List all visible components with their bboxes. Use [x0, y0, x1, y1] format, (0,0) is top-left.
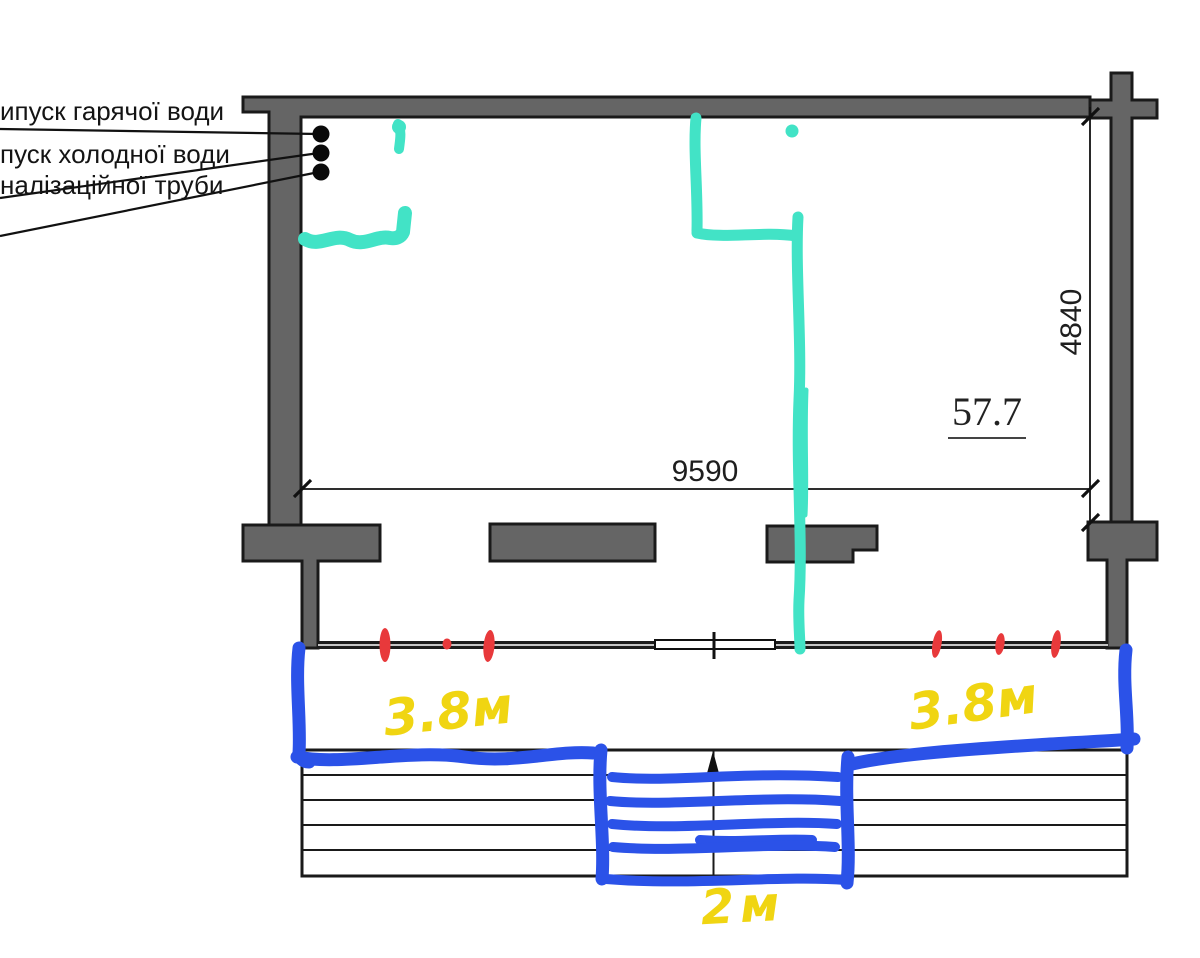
sewer-pipe-label: налізаційної труби	[0, 170, 223, 200]
red-mark-3	[482, 630, 496, 663]
cyan-long-vertical-pipe	[797, 217, 800, 649]
wall-right-top-cross	[1090, 73, 1157, 522]
cyan-double-stroke	[805, 390, 806, 515]
dim-width-value: 9590	[605, 455, 805, 489]
blue-left-horizontal	[297, 753, 593, 760]
wall-right-bottom-pier	[1088, 522, 1157, 648]
handwritten-stairs-width: 2м	[632, 872, 855, 939]
cyan-riser-vertical	[695, 118, 697, 231]
red-mark-1	[380, 628, 391, 662]
cold-water-outlet-dot	[313, 145, 330, 162]
terrace-steps	[302, 750, 1127, 876]
cyan-pipe-markings	[305, 118, 806, 649]
blue-stairs-box-left	[600, 750, 603, 879]
cyan-left-squiggle	[305, 213, 405, 242]
red-mark-2	[443, 639, 452, 650]
blue-step-stroke-3	[612, 823, 837, 827]
blue-left-vertical	[298, 648, 309, 762]
blue-step-stroke-5	[613, 846, 835, 849]
hot-water-outlet-dot	[313, 126, 330, 143]
cyan-short-dash	[398, 124, 400, 149]
hot-water-label: ипуск гарячої води	[0, 96, 224, 126]
wall-middle-pier-2	[767, 526, 877, 562]
blue-stairs-box-right	[847, 757, 849, 883]
blue-step-stroke-2	[610, 799, 840, 802]
red-mark-6	[1050, 630, 1063, 659]
sewer-outlet-dot	[313, 164, 330, 181]
blue-step-stroke-1	[612, 775, 838, 778]
dim-depth-value: 4840	[1055, 242, 1089, 402]
blue-step-stroke-4	[700, 840, 812, 841]
wall-bottom-left-pier	[243, 525, 380, 648]
front-wall	[318, 632, 1108, 659]
cyan-riser-horizontal	[697, 233, 797, 236]
cold-water-label: пуск холодної води	[0, 139, 230, 169]
wall-middle-pier-1	[490, 524, 655, 561]
red-mark-5	[994, 632, 1006, 655]
floor-plan-canvas: ипуск гарячої води пуск холодної води на…	[0, 0, 1200, 958]
blue-right-vertical	[1125, 650, 1128, 748]
room-area-value: 57.7	[948, 388, 1026, 439]
cyan-dot	[786, 125, 799, 138]
